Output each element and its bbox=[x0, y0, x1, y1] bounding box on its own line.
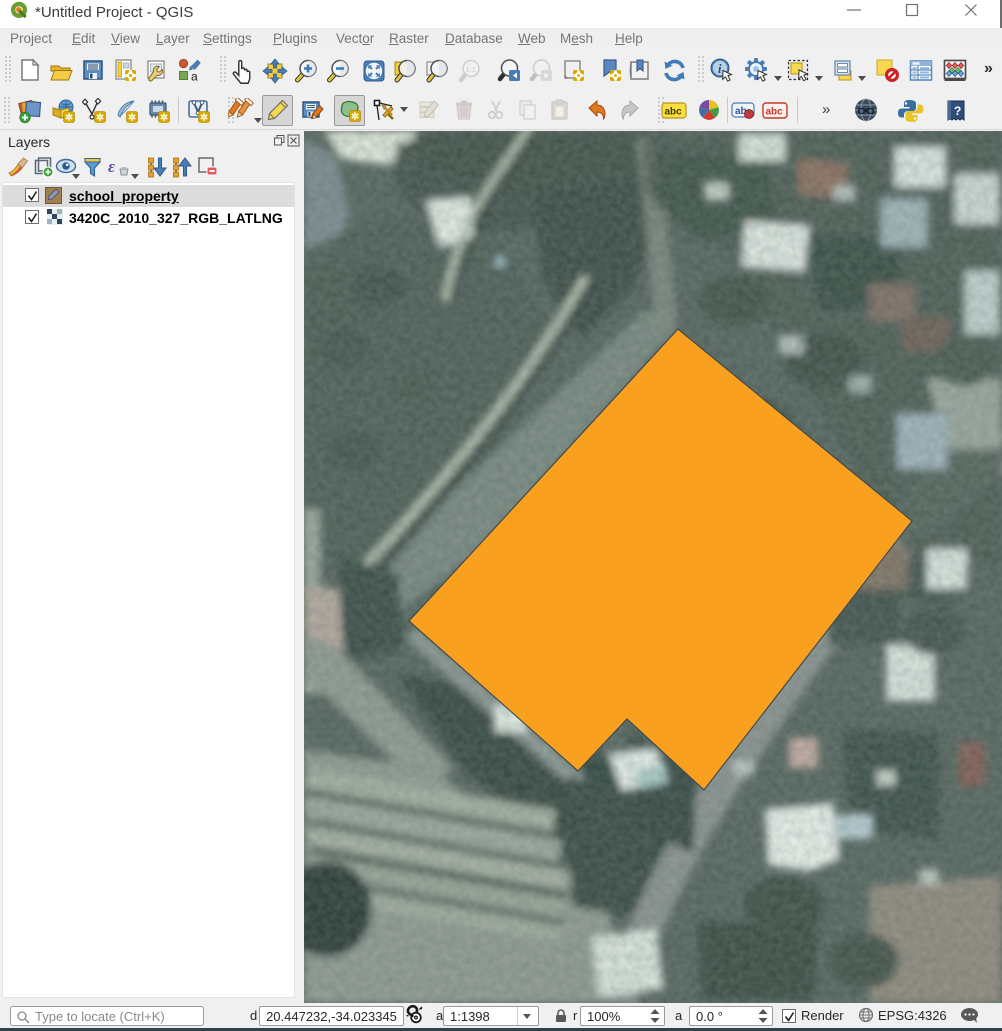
svg-text:abc: abc bbox=[665, 107, 683, 118]
svg-text:abc: abc bbox=[766, 107, 784, 118]
svg-text:a: a bbox=[191, 70, 198, 83]
svg-text:?: ? bbox=[954, 104, 961, 118]
svg-text:i: i bbox=[718, 62, 722, 76]
svg-text:1:1: 1:1 bbox=[466, 65, 476, 74]
svg-text:ε: ε bbox=[108, 157, 115, 176]
